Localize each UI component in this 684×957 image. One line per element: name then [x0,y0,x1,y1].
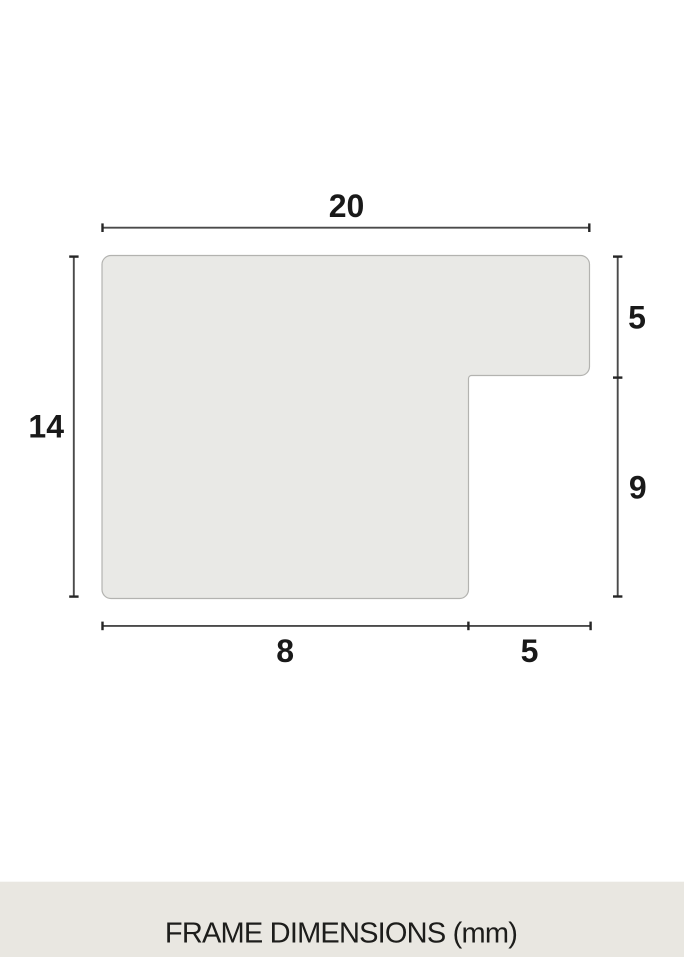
svg-text:20: 20 [329,188,365,224]
svg-text:5: 5 [521,633,539,669]
svg-text:8: 8 [276,633,294,669]
svg-text:9: 9 [629,470,647,506]
svg-text:FRAME DIMENSIONS (mm): FRAME DIMENSIONS (mm) [165,918,517,950]
svg-text:5: 5 [628,299,646,335]
svg-text:14: 14 [28,409,64,445]
